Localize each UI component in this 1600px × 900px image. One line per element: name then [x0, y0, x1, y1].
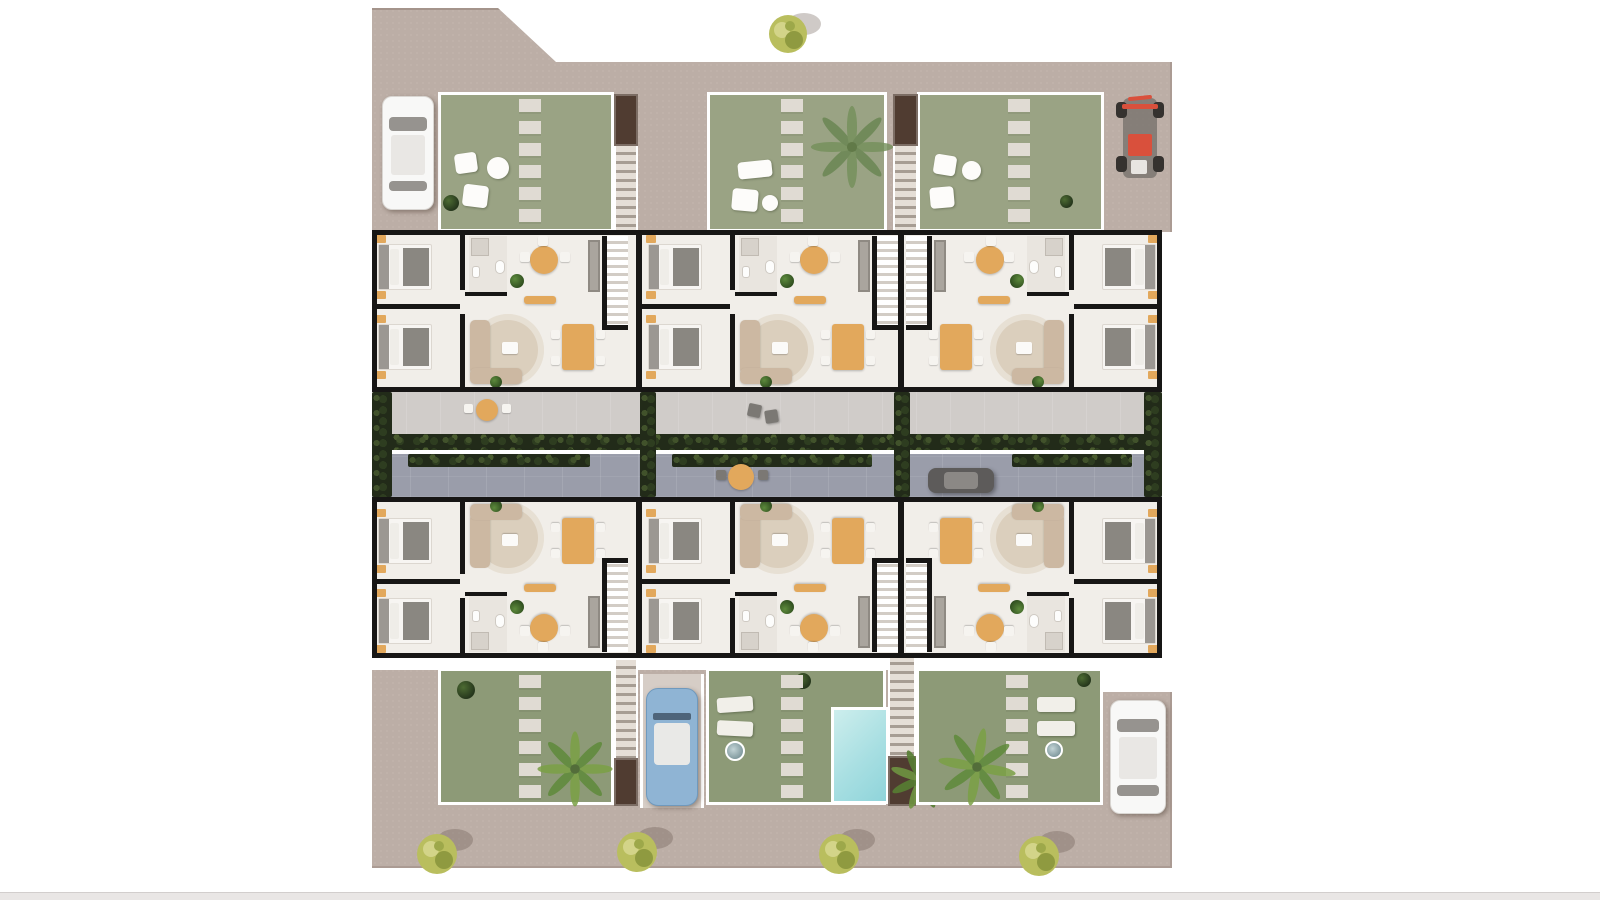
- staircase: [602, 558, 628, 652]
- partition-wall: [460, 230, 465, 290]
- round-dining-table: [976, 246, 1004, 274]
- windshield: [653, 713, 691, 720]
- dining-chair: [821, 523, 830, 532]
- bathroom: [1027, 592, 1065, 652]
- unit-interior: [904, 230, 1162, 392]
- hedge-column: [894, 392, 910, 497]
- courtyard-chair: [716, 470, 726, 480]
- staircase: [602, 236, 628, 330]
- dining-chair: [551, 356, 560, 365]
- sink: [472, 266, 480, 278]
- palm-tree: [933, 727, 1021, 807]
- partition-wall: [642, 579, 730, 584]
- bathroom: [739, 236, 777, 296]
- dining-table: [832, 518, 864, 564]
- nightstand: [376, 509, 386, 517]
- shower: [471, 238, 489, 256]
- blanket: [1105, 248, 1131, 286]
- dining-chair: [929, 549, 938, 558]
- sideboard: [978, 296, 1010, 304]
- sideboard: [978, 584, 1010, 592]
- bathroom: [469, 592, 507, 652]
- car-roof: [391, 135, 425, 175]
- dining-chair: [866, 330, 875, 339]
- dining-table: [940, 518, 972, 564]
- nightstand: [646, 589, 656, 597]
- dining-chair: [551, 330, 560, 339]
- parked-car-white-bottom: [1110, 700, 1166, 814]
- wheel: [1116, 156, 1127, 172]
- dining-chair: [821, 356, 830, 365]
- headboard: [1145, 519, 1155, 563]
- site-plan-canvas: [0, 0, 1600, 900]
- car-seats: [654, 723, 690, 765]
- windshield: [1117, 719, 1159, 732]
- party-wall: [636, 497, 642, 658]
- headboard: [379, 245, 389, 289]
- blanket: [1105, 602, 1131, 640]
- double-bed: [378, 598, 432, 644]
- garden-top-left: [438, 92, 614, 232]
- hedge-column: [1144, 392, 1162, 497]
- bathroom: [469, 236, 507, 296]
- round-dining-table: [530, 614, 558, 642]
- car-roof: [944, 472, 978, 489]
- blanket: [403, 328, 429, 366]
- apartment-unit-top-left: [372, 230, 640, 392]
- round-dining-table: [800, 614, 828, 642]
- nightstand: [1148, 315, 1158, 323]
- garden-armchair: [462, 184, 489, 209]
- unit-interior: [642, 497, 902, 658]
- partition-wall: [642, 304, 730, 309]
- double-bed: [378, 244, 432, 290]
- indoor-plant: [490, 500, 502, 512]
- toilet: [495, 614, 505, 628]
- dining-chair: [866, 356, 875, 365]
- nightstand: [646, 235, 656, 243]
- nightstand: [646, 565, 656, 573]
- partition-wall: [1069, 314, 1074, 392]
- partition-wall: [460, 598, 465, 658]
- pillow: [1135, 329, 1144, 365]
- round-dining-table: [976, 614, 1004, 642]
- headboard: [1145, 599, 1155, 643]
- garden-armchair: [454, 152, 479, 175]
- unit-interior: [642, 230, 902, 392]
- nightstand: [376, 235, 386, 243]
- headboard: [649, 245, 659, 289]
- stepping-stones: [781, 675, 803, 800]
- rear-window: [1117, 785, 1159, 796]
- sofa: [470, 514, 490, 568]
- nightstand: [1148, 291, 1158, 299]
- sun-lounger: [1037, 697, 1075, 712]
- apartment-unit-bottom-center: [642, 497, 902, 658]
- shrub: [443, 195, 459, 211]
- kitchen-counter: [588, 240, 600, 292]
- sofa: [1044, 514, 1064, 568]
- dining-chair: [596, 356, 605, 365]
- dining-chair: [596, 523, 605, 532]
- nightstand: [646, 371, 656, 379]
- stepping-stones: [781, 99, 803, 227]
- indoor-plant: [760, 376, 772, 388]
- garden-top-right: [917, 92, 1104, 232]
- dining-chair: [821, 549, 830, 558]
- street-tree: [610, 820, 676, 882]
- bistro-chair: [747, 403, 762, 418]
- sideboard: [524, 296, 556, 304]
- double-bed: [1102, 324, 1156, 370]
- sun-lounger: [717, 720, 754, 737]
- dining-chair: [520, 252, 530, 262]
- toilet: [765, 260, 775, 274]
- sofa: [740, 320, 760, 374]
- street-tree: [1012, 824, 1078, 886]
- dining-chair: [560, 252, 570, 262]
- unit-interior: [904, 497, 1162, 658]
- garden-sofa: [737, 159, 773, 179]
- patio-bottom-right: [1096, 658, 1162, 692]
- dining-chair: [866, 549, 875, 558]
- double-bed: [378, 324, 432, 370]
- dining-chair: [974, 549, 983, 558]
- coffee-table: [772, 342, 788, 354]
- garden-armchair: [933, 153, 958, 176]
- terrace-table: [476, 399, 498, 421]
- parked-car-blue-convertible: [646, 688, 698, 806]
- double-bed: [648, 598, 702, 644]
- sink: [742, 610, 750, 622]
- bottom-edge-bar: [0, 892, 1600, 900]
- dining-chair: [929, 523, 938, 532]
- dining-table: [562, 324, 594, 370]
- courtyard-table: [728, 464, 754, 490]
- nightstand: [646, 291, 656, 299]
- partition-wall: [460, 314, 465, 392]
- dining-chair: [974, 330, 983, 339]
- dining-chair: [1004, 252, 1014, 262]
- partition-wall: [465, 292, 507, 296]
- garden-top-center: [707, 92, 887, 232]
- blanket: [403, 602, 429, 640]
- stair-shaft: [614, 758, 638, 806]
- double-bed: [1102, 518, 1156, 564]
- staircase: [906, 236, 932, 330]
- windshield: [389, 117, 427, 131]
- blanket: [403, 522, 429, 560]
- hedge-row: [672, 454, 872, 467]
- dining-chair: [929, 330, 938, 339]
- pillow: [390, 329, 399, 365]
- sofa: [740, 514, 760, 568]
- garden-table: [762, 195, 778, 211]
- kitchen-counter: [934, 240, 946, 292]
- plate-cutout: [1161, 232, 1173, 692]
- dining-chair: [830, 626, 840, 636]
- pillow: [390, 603, 399, 639]
- toilet: [1029, 260, 1039, 274]
- exterior-staircase: [614, 660, 638, 758]
- pillow: [390, 249, 399, 285]
- stepping-stones: [1008, 99, 1030, 227]
- dining-chair: [808, 642, 818, 652]
- indoor-plant: [510, 274, 524, 288]
- double-bed: [1102, 244, 1156, 290]
- headboard: [379, 519, 389, 563]
- exterior-staircase: [888, 656, 916, 756]
- shower: [1045, 238, 1063, 256]
- parked-car-gray: [928, 468, 994, 493]
- staircase: [906, 558, 932, 652]
- spa-tub: [725, 741, 745, 761]
- partition-wall: [372, 304, 460, 309]
- party-wall: [898, 230, 904, 392]
- garden-bottom-right: [916, 668, 1103, 805]
- sink: [1054, 610, 1062, 622]
- apartment-row-bottom: [372, 497, 1162, 658]
- apartment-unit-bottom-left: [372, 497, 640, 658]
- quad-handlebar: [1122, 104, 1158, 109]
- unit-interior: [372, 230, 640, 392]
- hedge-column: [372, 392, 392, 497]
- party-wall: [636, 230, 642, 392]
- street-tree: [410, 822, 476, 884]
- dining-chair: [520, 626, 530, 636]
- partition-wall: [735, 292, 777, 296]
- hedge-row: [408, 454, 590, 467]
- dining-chair: [986, 236, 996, 246]
- headboard: [649, 599, 659, 643]
- blanket: [403, 248, 429, 286]
- partition-wall: [465, 592, 507, 596]
- shower: [741, 632, 759, 650]
- garden-bottom-center: [706, 668, 886, 805]
- indoor-plant: [1010, 600, 1024, 614]
- double-bed: [378, 518, 432, 564]
- kitchen-counter: [934, 596, 946, 648]
- hedge-column: [640, 392, 656, 497]
- terrace-chair: [502, 404, 511, 413]
- bathroom: [739, 592, 777, 652]
- round-dining-table: [800, 246, 828, 274]
- indoor-plant: [1032, 376, 1044, 388]
- nightstand: [646, 509, 656, 517]
- partition-wall: [1069, 230, 1074, 290]
- dining-chair: [551, 549, 560, 558]
- toilet: [495, 260, 505, 274]
- coffee-table: [1016, 534, 1032, 546]
- headboard: [379, 599, 389, 643]
- partition-wall: [730, 314, 735, 392]
- dining-chair: [596, 330, 605, 339]
- swimming-pool: [831, 707, 889, 804]
- wheel: [1153, 156, 1164, 172]
- blanket: [673, 328, 699, 366]
- double-bed: [648, 244, 702, 290]
- apartment-unit-top-right: [904, 230, 1162, 392]
- garden-bottom-left: [438, 668, 614, 805]
- partition-wall: [1069, 497, 1074, 574]
- car-roof: [1119, 737, 1157, 779]
- blanket: [1105, 328, 1131, 366]
- partition-wall: [1027, 292, 1069, 296]
- red-quad-buggy: [1114, 92, 1166, 184]
- pillow: [390, 523, 399, 559]
- dining-chair: [790, 626, 800, 636]
- sink: [472, 610, 480, 622]
- sofa: [1044, 320, 1064, 374]
- bistro-chair: [764, 409, 779, 424]
- sink: [1054, 266, 1062, 278]
- double-bed: [648, 518, 702, 564]
- unit-interior: [372, 497, 640, 658]
- headboard: [379, 325, 389, 369]
- dining-chair: [964, 252, 974, 262]
- pillow: [1135, 603, 1144, 639]
- partition-wall: [1074, 579, 1162, 584]
- indoor-plant: [510, 600, 524, 614]
- dining-table: [940, 324, 972, 370]
- nightstand: [1148, 371, 1158, 379]
- nightstand: [1148, 565, 1158, 573]
- dining-chair: [551, 523, 560, 532]
- sink: [742, 266, 750, 278]
- nightstand: [1148, 509, 1158, 517]
- staircase: [872, 236, 898, 330]
- dining-chair: [986, 642, 996, 652]
- kitchen-counter: [588, 596, 600, 648]
- dining-chair: [964, 626, 974, 636]
- coffee-table: [502, 342, 518, 354]
- coffee-table: [1016, 342, 1032, 354]
- apartment-unit-top-center: [642, 230, 902, 392]
- dining-chair: [830, 252, 840, 262]
- sideboard: [794, 584, 826, 592]
- dining-chair: [929, 356, 938, 365]
- shower: [1045, 632, 1063, 650]
- quad-seat: [1128, 134, 1152, 156]
- central-band: [372, 392, 1162, 497]
- rear-window: [389, 181, 427, 191]
- round-dining-table: [530, 246, 558, 274]
- double-bed: [648, 324, 702, 370]
- blanket: [673, 602, 699, 640]
- nightstand: [1148, 235, 1158, 243]
- shower: [471, 632, 489, 650]
- shrub: [1077, 673, 1091, 687]
- dining-chair: [560, 626, 570, 636]
- pillow: [660, 329, 669, 365]
- bathroom: [1027, 236, 1065, 296]
- partition-wall: [460, 497, 465, 574]
- coffee-table: [772, 534, 788, 546]
- partition-wall: [730, 230, 735, 290]
- dining-chair: [790, 252, 800, 262]
- dining-chair: [596, 549, 605, 558]
- nightstand: [376, 291, 386, 299]
- street-tree: [812, 822, 878, 884]
- hedge-row: [372, 434, 1162, 450]
- headboard: [649, 325, 659, 369]
- toilet: [765, 614, 775, 628]
- staircase: [872, 558, 898, 652]
- blanket: [1105, 522, 1131, 560]
- sofa: [470, 320, 490, 374]
- dining-chair: [974, 523, 983, 532]
- terrace-chair: [464, 404, 473, 413]
- street-tree-top: [760, 4, 824, 64]
- garden-table: [487, 157, 509, 179]
- headboard: [649, 519, 659, 563]
- partition-wall: [730, 598, 735, 658]
- dining-chair: [808, 236, 818, 246]
- pillow: [660, 249, 669, 285]
- dining-table: [832, 324, 864, 370]
- indoor-plant: [760, 500, 772, 512]
- indoor-plant: [1032, 500, 1044, 512]
- pillow: [660, 523, 669, 559]
- apartment-row-top: [372, 230, 1162, 392]
- kitchen-counter: [858, 240, 870, 292]
- indoor-plant: [780, 274, 794, 288]
- quad-deck: [1131, 160, 1147, 174]
- apartment-unit-bottom-right: [904, 497, 1162, 658]
- indoor-plant: [1010, 274, 1024, 288]
- sideboard: [524, 584, 556, 592]
- nightstand: [1148, 589, 1158, 597]
- palm-tree: [533, 729, 617, 809]
- garden-armchair: [731, 188, 759, 212]
- partition-wall: [1069, 598, 1074, 658]
- party-wall: [898, 497, 904, 658]
- pillow: [1135, 249, 1144, 285]
- sun-lounger: [1037, 721, 1075, 736]
- stair-shaft: [893, 94, 918, 146]
- garden-table: [962, 161, 981, 180]
- indoor-plant: [780, 600, 794, 614]
- nightstand: [376, 645, 386, 653]
- shrub: [1060, 195, 1073, 208]
- coffee-table: [502, 534, 518, 546]
- double-bed: [1102, 598, 1156, 644]
- partition-wall: [1027, 592, 1069, 596]
- dining-chair: [821, 330, 830, 339]
- indoor-plant: [490, 376, 502, 388]
- palm-tree: [810, 105, 894, 189]
- dining-table: [562, 518, 594, 564]
- nightstand: [1148, 645, 1158, 653]
- toilet: [1029, 614, 1039, 628]
- partition-wall: [372, 579, 460, 584]
- sideboard: [794, 296, 826, 304]
- garden-armchair: [929, 186, 955, 209]
- partition-wall: [1074, 304, 1162, 309]
- nightstand: [646, 645, 656, 653]
- pillow: [1135, 523, 1144, 559]
- sun-lounger: [717, 696, 754, 713]
- blanket: [673, 522, 699, 560]
- nightstand: [376, 565, 386, 573]
- dining-chair: [866, 523, 875, 532]
- headboard: [1145, 245, 1155, 289]
- nightstand: [376, 371, 386, 379]
- hedge-row: [1012, 454, 1132, 467]
- dining-chair: [538, 642, 548, 652]
- stepping-stones: [519, 99, 541, 227]
- dining-chair: [1004, 626, 1014, 636]
